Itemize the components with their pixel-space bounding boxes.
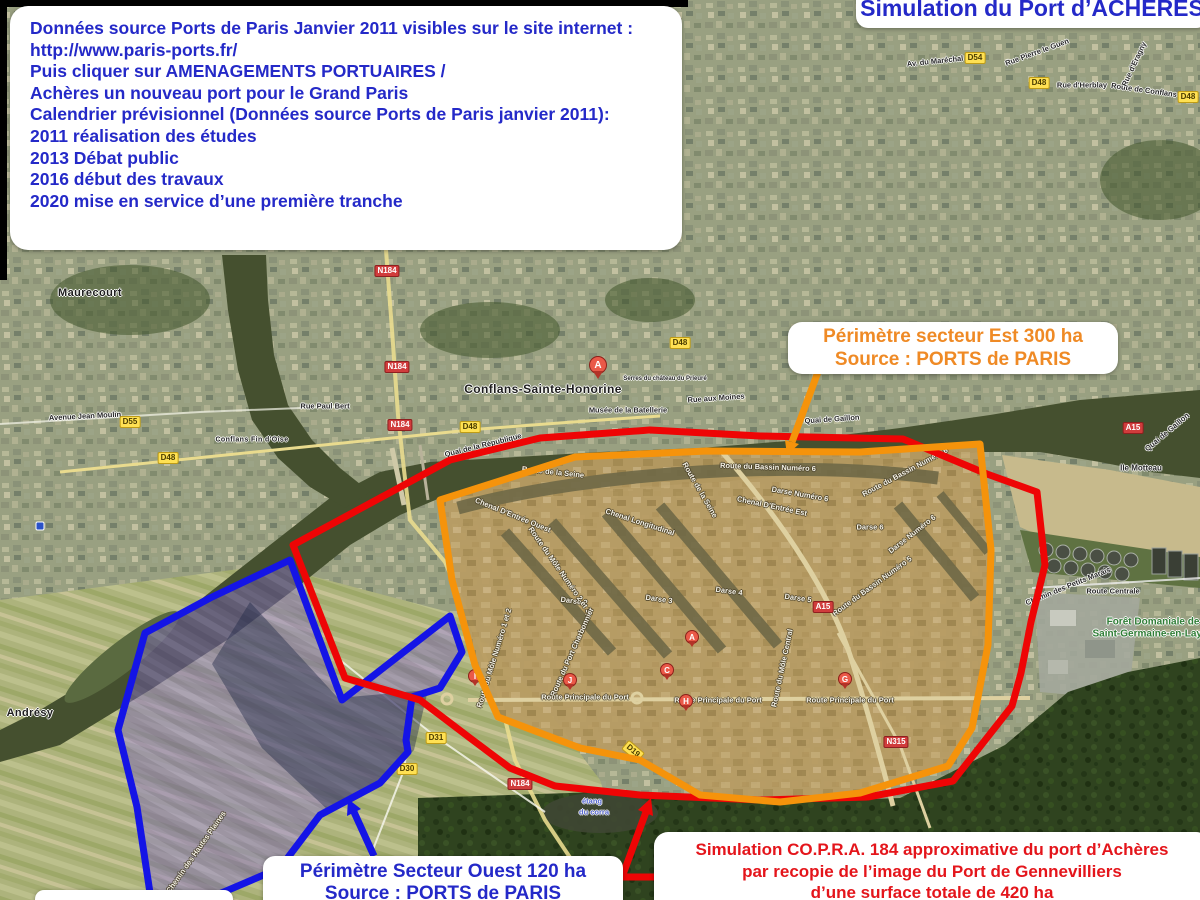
street-label: Rue d'Herblay [1057, 81, 1107, 90]
street-label: Chenal Longitudinal [604, 507, 675, 538]
street-label: du corra [579, 808, 609, 817]
road-shield-n315: N315 [883, 736, 908, 748]
street-label: Route du Bassin Numéro 5 [831, 554, 914, 618]
source-info-box: Données source Ports de Paris Janvier 20… [10, 6, 682, 250]
map-pin-i: I [468, 669, 482, 683]
info-line: Puis cliquer sur AMENAGEMENTS PORTUAIRES… [30, 61, 682, 83]
road-shield-n184: N184 [384, 361, 409, 373]
street-label: Rue Paul Bert [300, 402, 349, 411]
street-label: Darse 4 [715, 585, 743, 598]
pin-letter: J [563, 673, 577, 687]
town-label: Conflans Fin d'Oise [215, 437, 288, 444]
info-line: 2016 début des travaux [30, 169, 682, 191]
pin-letter: A [589, 356, 607, 374]
pin-letter: I [468, 669, 482, 683]
street-label: Route de la Seine [680, 461, 719, 520]
town-label: Andrésy [7, 707, 54, 719]
street-label: Saint-Germaine-en-Laye [1092, 629, 1200, 640]
slide-edge-left [0, 0, 7, 280]
map-pin-c: C [660, 663, 674, 677]
road-shield-d54: D54 [965, 52, 986, 64]
street-label: Route Centrale [1086, 587, 1139, 596]
street-label: étang [582, 797, 602, 806]
street-label: Route du Môle Central [769, 628, 794, 708]
street-label: Route de la Seine [521, 464, 584, 479]
street-label: Forêt Domaniale de [1107, 617, 1200, 628]
street-label: Musée de la Batellerie [589, 406, 667, 415]
title-box: Simulation du Port d’ACHÈRES [856, 0, 1200, 28]
street-label: Avenue Jean Moulin [49, 410, 122, 423]
road-shield-d48: D48 [1178, 91, 1199, 103]
info-line: Achères un nouveau port pour le Grand Pa… [30, 83, 682, 105]
map-pin-h: H [679, 694, 693, 708]
road-shield-a15: A15 [813, 601, 834, 613]
cutoff-label-box [35, 890, 233, 900]
pin-letter: C [660, 663, 674, 677]
road-shield-d48: D48 [158, 452, 179, 464]
street-label: Quai de la République [444, 431, 523, 459]
ouest-label-line1: Périmètre Secteur Ouest 120 ha [300, 861, 586, 883]
map-pin-a: A [685, 630, 699, 644]
info-line: Données source Ports de Paris Janvier 20… [30, 18, 682, 40]
info-line: 2013 Débat public [30, 148, 682, 170]
street-label: Chemin des Hautes Plaines [164, 809, 228, 894]
road-shield-d31: D31 [426, 732, 447, 744]
street-label: Route du Môle Numéro 1 et 2 [475, 607, 514, 708]
road-shield-n184: N184 [374, 265, 399, 277]
street-label: Serres du château du Prieuré [623, 376, 706, 382]
street-label: Darse 3 [645, 593, 673, 606]
road-shield-a15: A15 [1123, 422, 1144, 434]
est-label-line2: Source : PORTS de PARIS [835, 348, 1071, 371]
street-label: Darse Numéro 6 [771, 485, 829, 504]
street-label: Route du Bassin Numéro 6 [720, 461, 816, 473]
page-title: Simulation du Port d’ACHÈRES [860, 0, 1200, 22]
road-shield-d55: D55 [120, 416, 141, 428]
street-label: Route du Bassin Numéro 6 [861, 446, 950, 499]
street-label: Rue Pierre le Guen [1004, 36, 1070, 67]
info-line: 2011 réalisation des études [30, 126, 682, 148]
info-line-url: http://www.paris-ports.fr/ [30, 40, 682, 62]
map-pin-j: J [563, 673, 577, 687]
transit-station-icon [36, 522, 45, 531]
map-pin-g: G [838, 672, 852, 686]
town-label: Maurecourt [58, 287, 122, 299]
street-label: Rue d'Eragny [1120, 40, 1148, 87]
copra-line3: d’une surface totale de 420 ha [811, 882, 1054, 900]
info-line: Calendrier prévisionnel (Données source … [30, 104, 682, 126]
road-shield-n184: N184 [387, 419, 412, 431]
perimeter-est-label: Périmètre secteur Est 300 ha Source : PO… [788, 322, 1118, 374]
copra-simulation-label: Simulation CO.P.R.A. 184 approximative d… [654, 832, 1200, 900]
street-label: Darse 6 [856, 523, 883, 532]
road-shield-d48: D48 [670, 337, 691, 349]
street-label: Route Principale du Port [541, 693, 629, 702]
perimeter-ouest-label: Périmètre Secteur Ouest 120 ha Source : … [263, 856, 623, 900]
road-shield-n184: N184 [507, 778, 532, 790]
street-label: Quai de Gaillon [1143, 411, 1191, 453]
pin-letter: G [838, 672, 852, 686]
road-shield-d48: D48 [460, 421, 481, 433]
pin-letter: H [679, 694, 693, 708]
map-canvas[interactable]: MaurecourtConflans-Sainte-HonorineAndrés… [0, 0, 1200, 900]
ouest-label-line2: Source : PORTS de PARIS [325, 883, 561, 900]
street-label: Chenal D'Entrée Ouest [474, 496, 552, 535]
copra-line2: par recopie de l’image du Port de Gennev… [742, 861, 1122, 883]
pin-letter: A [685, 630, 699, 644]
street-label: Darse 5 [784, 592, 812, 605]
town-label: Conflans-Sainte-Honorine [464, 382, 622, 396]
road-shield-d30: D30 [397, 763, 418, 775]
street-label: Ile Motteau [1120, 464, 1162, 473]
street-label: Route Principale du Port [806, 696, 894, 705]
street-label: Rue aux Moines [687, 392, 745, 405]
street-label: Quai de Gaillon [804, 413, 860, 426]
info-line: 2020 mise en service d’une première tran… [30, 191, 682, 213]
est-label-line1: Périmètre secteur Est 300 ha [823, 325, 1083, 348]
road-shield-d48: D48 [1029, 77, 1050, 89]
copra-line1: Simulation CO.P.R.A. 184 approximative d… [696, 839, 1169, 861]
map-pin-a: A [589, 356, 607, 374]
street-label: Darse Numéro 6 [887, 513, 938, 556]
road-shield-d19: D19 [621, 740, 645, 762]
